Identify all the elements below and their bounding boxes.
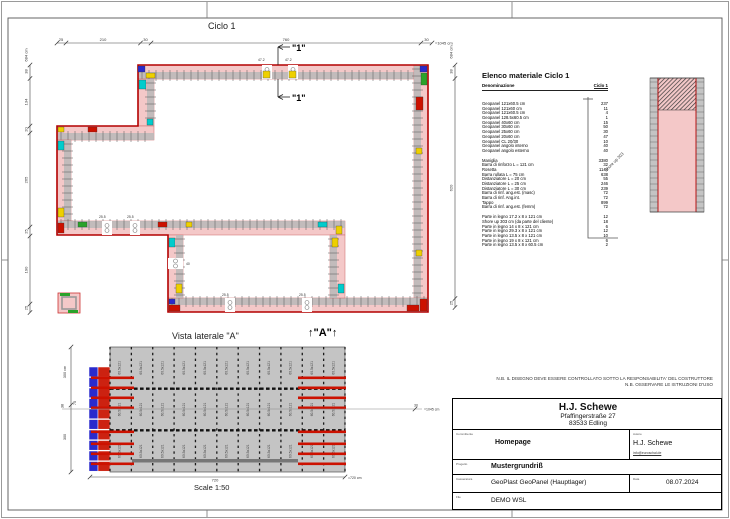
panel-piece [169,299,175,304]
dim-label: 30 [143,37,148,42]
panel-size-label: 60.5x121 [225,403,229,417]
reinforcement-bar [298,453,346,456]
formwork-value: GeoPlast GeoPanel (Hauptlager) [491,479,586,486]
gap-label: 25.5 [299,293,306,297]
panel-piece [58,208,64,217]
dim-label: 265 [24,176,29,183]
row-client: Committente Homepage Autore H.J. Schewe … [453,429,721,459]
dim-label: 30 [424,37,429,42]
panel-size-label: 60.5x121 [310,361,314,375]
reinforcement-bar [298,397,346,400]
material-name: Parte in legno 13.5 x 8 x 60.5 cm [482,243,543,248]
panel-size-label: 60.5x121 [267,361,271,375]
panel-piece [58,127,64,132]
row-file: File DEMO WSL [453,492,721,511]
formwork-label: Casseratura [456,477,472,481]
dim-label: 300 cm [63,366,67,378]
panel-piece [158,222,167,227]
plan-title: Ciclo 1 [208,21,236,31]
file-value: DEMO WSL [491,497,526,504]
reinforcement-bar [91,443,134,446]
note-line: N.B. OSSERVARE LE ISTRUZIONI D'USO [496,382,713,388]
panel-piece [88,127,97,132]
gap-label: 47.2 [258,58,265,62]
panel-piece [58,141,64,150]
panel-piece [420,299,427,311]
col-denominazione: Denominazione [482,83,514,89]
company-address1: Pfaffingerstraße 27 [453,413,723,420]
dim-label: 134 [24,98,29,105]
dim-label: 760 [283,37,290,42]
dim-label: 720 [212,478,219,483]
wall-gap [225,298,235,312]
panel-size-label: 60.5x121 [331,444,335,458]
panel-piece [332,238,338,247]
panel-piece [146,73,155,78]
author-value: H.J. Schewe [633,440,672,447]
plan-view: "1""1"47.247.225.525.525.525.540 [57,43,428,313]
panel-size-label: 60.5x121 [139,444,143,458]
yellow-joint [263,71,270,78]
reinforcement-bar [91,397,134,400]
blue-panel-cell [89,409,98,419]
dim-label: 38 [61,404,65,408]
dim-label: 210 [100,37,107,42]
panel-size-label: 60.5x121 [139,403,143,417]
client-value: Homepage [495,439,531,446]
reinforcement-bar [298,431,346,434]
panel-size-label: 60.5x121 [118,444,122,458]
company-address2: 83533 Edling [453,420,723,427]
panel-piece [176,284,182,293]
file-label: File [456,495,461,499]
section-marker: "1" [292,93,306,103]
reinforcement-bar [298,443,346,446]
side-view-title: Vista laterale "A" [172,331,239,341]
panel-size-label: 60.5x121 [267,444,271,458]
wall-gap [302,298,312,312]
author-label: Autore [633,432,642,436]
dim-label: 25 [59,37,64,42]
panel-piece [78,222,87,227]
panel-size-label: 60.5x121 [289,403,293,417]
notes: N.B. IL DISEGNO DEVE ESSERE CONTROLLATO … [496,376,713,388]
panel-size-label: 60.5x121 [203,403,207,417]
panel-piece [416,250,422,256]
panel-size-label: 60.5x121 [182,361,186,375]
panel-piece [338,284,344,293]
panel-piece [407,305,419,311]
wall-outline [57,65,428,312]
dim-total: 684 cm [449,45,454,59]
gap-label: 25.5 [127,215,134,219]
company-block: H.J. Schewe Pfaffingerstraße 27 83533 Ed… [453,399,723,429]
material-list-title: Elenco materiale Ciclo 1 [482,71,608,80]
panel-piece [58,223,64,233]
blue-panel-cell [89,367,98,377]
dim-label: 75 [73,401,77,405]
panel-piece [139,80,146,89]
company-name: H.J. Schewe [453,402,723,413]
material-qty: 72 [603,205,608,210]
panel-size-label: 60.5x121 [118,403,122,417]
blue-panel-cell [89,388,98,398]
divider [629,429,630,459]
reinforcement-bar [91,453,134,456]
panel-size-label: 60.5x121 [203,361,207,375]
section-marker: "1" [292,43,306,53]
drawing-sheet: "1""1"47.247.225.525.525.525.540 2521030… [0,0,730,519]
panel-piece [336,226,342,234]
blue-panel-cell [89,441,98,451]
panel-piece [420,66,427,72]
material-row: Parte in legno 13.5 x 8 x 60.5 cm2 [482,243,608,248]
panel-size-label: 60.5x121 [331,361,335,375]
blue-panel-cell [89,451,98,461]
red-panel-cell [98,388,110,398]
date-label: Data [633,477,639,481]
dim-total: =1045 cm [424,408,440,412]
dim-label: 38 [24,69,29,74]
material-qty: 40 [603,149,608,154]
project-label: Progetto [456,462,467,466]
material-qty: 2 [606,243,608,248]
panel-size-label: 60.5x121 [246,403,250,417]
project-value: Mustergrundriß [491,463,543,470]
reinforcement-bar [298,387,346,390]
panel-size-label: 60.5x121 [160,361,164,375]
wall-gap [130,221,140,235]
dim-label: 190 [24,266,29,273]
material-list-header: Denominazione Ciclo 1 [482,83,608,91]
gap-label: 47.2 [285,58,292,62]
panel-size-label: 60.5x121 [267,403,271,417]
red-panel-cell [98,441,110,451]
material-name: Geopanel angolo esterno [482,149,529,154]
side-view: 60.5x12160.5x12160.5x12160.5x12160.5x121… [61,345,440,483]
panel-size-label: 60.5x121 [310,403,314,417]
row-formwork: Casseratura GeoPlast GeoPanel (Hauptlage… [453,474,721,492]
dim-label: 300 [63,434,67,440]
dim-total: 684 cm [24,48,29,62]
panel-piece [169,238,175,247]
panel-piece [416,97,423,110]
dim-label: 38 [449,69,454,74]
panel-size-label: 60.5x121 [289,444,293,458]
reinforcement-bar [91,431,134,434]
col-ciclo1: Ciclo 1 [594,83,608,89]
panel-band [138,72,428,79]
yellow-joint [289,71,296,78]
dim-label: 25 [24,305,29,310]
red-panel-cell [98,367,110,377]
panel-size-label: 60.5x121 [225,361,229,375]
reinforcement-bar [91,463,134,466]
title-block: H.J. Schewe Pfaffingerstraße 27 83533 Ed… [452,398,722,510]
scale-label: Scale 1:50 [194,483,229,492]
view-direction-marker: ↑"A"↑ [308,327,337,339]
dim-label: 20 [24,127,29,132]
red-panel-cell [98,409,110,419]
dim-label: 620 [449,184,454,191]
date-value: 08.07.2024 [666,479,699,486]
material-name: Barra di rinf. ang.est. (femm) [482,205,535,210]
base-bar [132,459,298,463]
gap-label: 25.5 [99,215,106,219]
panel-size-label: 60.5x121 [246,444,250,458]
panel-size-label: 60.5x121 [182,444,186,458]
blue-panel-cell [89,420,98,430]
panel-piece [138,66,145,72]
reinforcement-bar [298,463,346,466]
panel-size-label: 60.5x121 [182,403,186,417]
reinforcement-bar [91,387,134,390]
panel-piece [186,222,192,227]
panel-size-label: 60.5x121 [331,403,335,417]
panel-piece [318,222,327,227]
panel-piece [169,305,180,311]
dim-label: 30 [414,404,418,408]
hatch-zone [658,78,696,110]
row-project: Progetto Mustergrundriß [453,459,721,474]
gap-label: 40 [186,262,190,266]
panel-size-label: 60.5x121 [225,444,229,458]
dim-label: 25 [449,300,454,305]
panel-piece [421,73,427,85]
panel-size-label: 60.5x121 [310,444,314,458]
gap-label: 25.5 [222,293,229,297]
panel-piece [147,119,153,125]
client-label: Committente [456,432,473,436]
panel-size-label: 60.5x121 [139,361,143,375]
dim-label: 25 [24,229,29,234]
panel-band [57,133,154,140]
panel-size-label: 60.5x121 [246,361,250,375]
panel-piece [416,148,422,154]
panel-size-label: 60.5x121 [289,361,293,375]
dim-total: =720 cm [348,476,362,480]
wall-gap [102,221,112,235]
author-email[interactable]: info@euroschal.de [633,451,661,455]
reinforcement-bar [298,377,346,380]
material-list: Elenco materiale Ciclo 1 Denominazione C… [482,71,608,248]
panel-size-label: 60.5x121 [203,444,207,458]
dim-total: =1045 cm [435,41,453,46]
divider [629,474,630,492]
panel-size-label: 60.5x121 [160,403,164,417]
reinforcement-bar [91,377,134,380]
red-panel-cell [98,420,110,430]
panel-size-label: 60.5x121 [118,361,122,375]
red-panel-cell [98,451,110,461]
panel-size-label: 60.5x121 [160,444,164,458]
